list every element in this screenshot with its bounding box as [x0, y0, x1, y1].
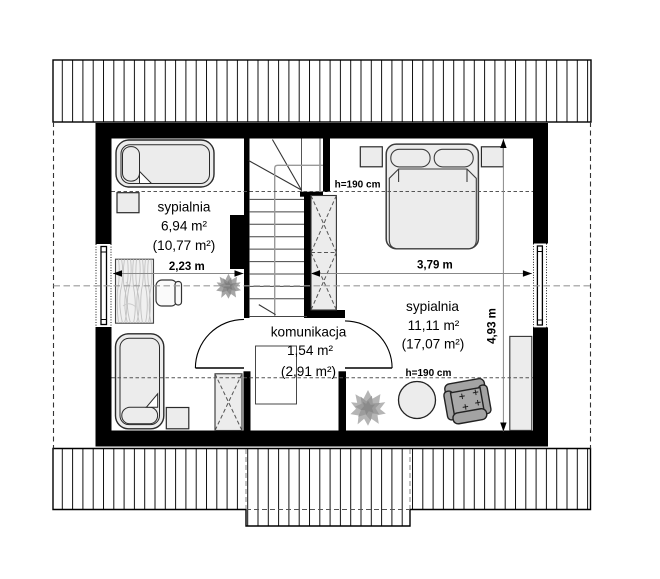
- svg-text:(10,77 m²): (10,77 m²): [153, 238, 216, 253]
- svg-text:2,23 m: 2,23 m: [169, 261, 205, 273]
- svg-text:komunikacja: komunikacja: [271, 324, 347, 339]
- svg-text:sypialnia: sypialnia: [406, 299, 459, 314]
- svg-text:h=190 cm: h=190 cm: [406, 368, 452, 379]
- svg-text:4,93 m: 4,93 m: [487, 308, 499, 344]
- svg-text:h=190 cm: h=190 cm: [335, 180, 381, 191]
- svg-text:1,54 m²: 1,54 m²: [287, 343, 334, 358]
- svg-text:6,94 m²: 6,94 m²: [161, 219, 208, 234]
- svg-text:(17,07 m²): (17,07 m²): [402, 337, 465, 352]
- svg-text:(2,91 m²): (2,91 m²): [281, 364, 336, 379]
- svg-text:11,11 m²: 11,11 m²: [408, 318, 460, 333]
- svg-text:3,79 m: 3,79 m: [417, 260, 453, 272]
- svg-text:sypialnia: sypialnia: [158, 200, 211, 215]
